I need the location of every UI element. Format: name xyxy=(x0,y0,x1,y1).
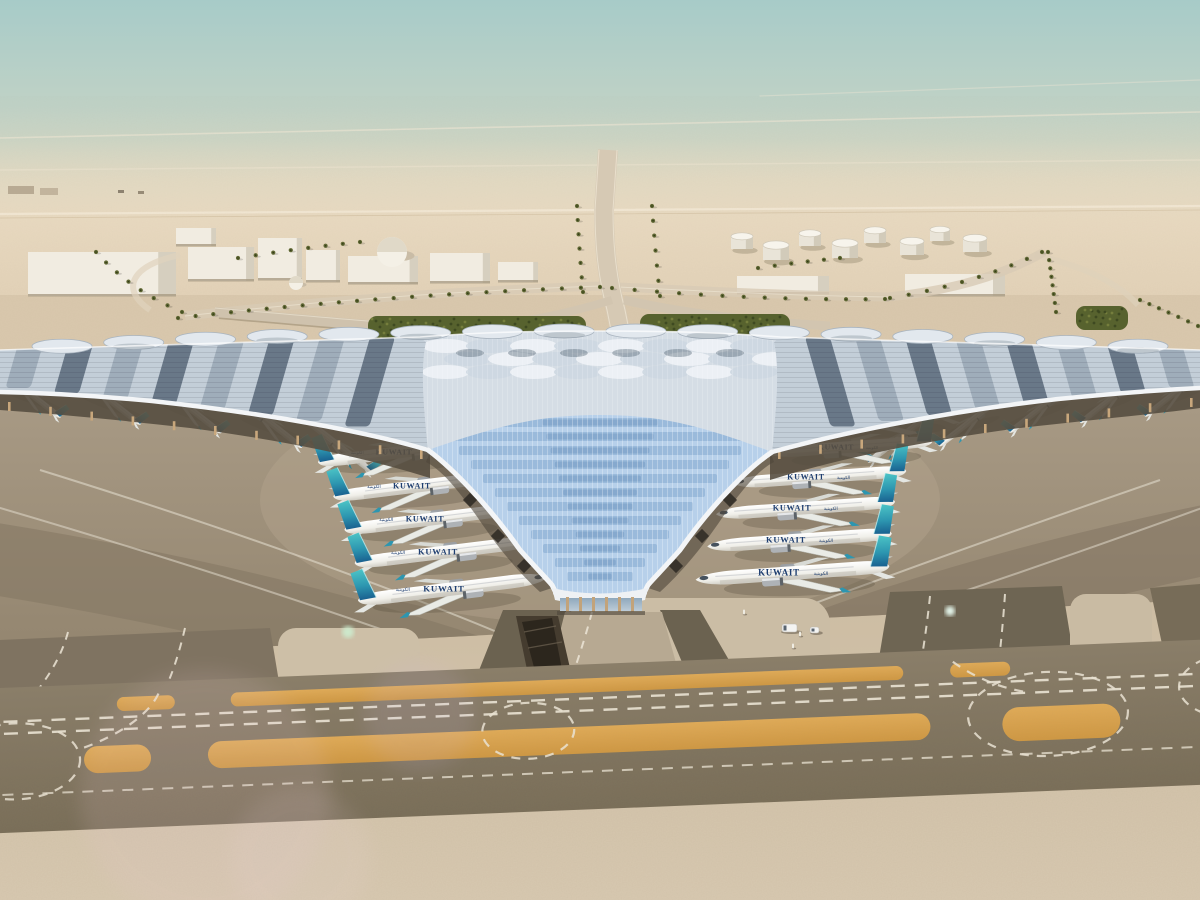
hedge-texture-dot xyxy=(726,323,729,326)
airline-title-arabic: الكويتية xyxy=(391,550,405,556)
hedge-texture-dot xyxy=(673,328,676,331)
building-side xyxy=(533,262,538,282)
hedge-texture-dot xyxy=(685,320,688,323)
palm-trunk xyxy=(656,291,658,293)
hedge-texture-dot xyxy=(692,321,695,324)
building-side xyxy=(483,253,490,283)
facade-column xyxy=(255,431,258,440)
hedge-texture-dot xyxy=(489,322,492,325)
hedge-texture-dot xyxy=(439,320,442,323)
palm-trunk xyxy=(599,286,601,288)
facade-column xyxy=(1066,414,1069,423)
hedge-texture-dot xyxy=(389,318,392,321)
palm-trunk xyxy=(1197,325,1199,327)
hedge-texture-dot xyxy=(1088,315,1091,318)
palm-trunk xyxy=(805,298,807,300)
hedge-texture-dot xyxy=(760,323,763,326)
hedge-texture-dot xyxy=(1116,319,1119,322)
airline-title-arabic: الكويتية xyxy=(837,475,850,481)
building-shadow xyxy=(430,281,490,284)
palm-trunk xyxy=(884,298,886,300)
roof-scallop xyxy=(1036,335,1096,349)
building-face xyxy=(498,262,538,282)
facade-column xyxy=(90,412,93,421)
palm-trunk xyxy=(230,311,232,313)
palm-trunk xyxy=(653,235,655,237)
hedge-texture-dot xyxy=(740,325,743,328)
palm-trunk xyxy=(1053,293,1055,295)
hedge-texture-dot xyxy=(664,317,667,320)
palm-trunk xyxy=(307,247,309,249)
cone-body xyxy=(792,644,794,649)
palm-trunk xyxy=(486,291,488,293)
vehicle-windshield xyxy=(812,629,815,632)
airline-title-arabic: الكويتية xyxy=(819,538,833,544)
facade-column xyxy=(819,445,822,454)
palm-trunk xyxy=(1052,285,1054,287)
hedge-texture-dot xyxy=(400,321,403,324)
palm-trunk xyxy=(272,252,274,254)
campus-building xyxy=(258,238,302,281)
hedge-texture-dot xyxy=(1093,322,1096,325)
lens-flare xyxy=(365,661,475,771)
airline-title-arabic: الكويتية xyxy=(814,571,829,577)
hedge-texture-dot xyxy=(698,317,701,320)
hedge-texture-dot xyxy=(560,319,563,322)
hedge-texture-dot xyxy=(691,316,694,319)
roof-scallop xyxy=(32,339,92,353)
hedge-texture-dot xyxy=(478,319,481,322)
building-shadow xyxy=(498,280,538,283)
hedge-texture-dot xyxy=(747,326,750,329)
hedge-texture-dot xyxy=(1086,321,1089,324)
palm-trunk xyxy=(561,288,563,290)
hedge-texture-dot xyxy=(1114,325,1117,328)
facade-column xyxy=(902,434,905,443)
palm-trunk xyxy=(611,287,613,289)
palm-trunk xyxy=(1139,299,1141,301)
hedge-texture-dot xyxy=(1084,309,1087,312)
hedge-block xyxy=(1076,306,1128,330)
building-face xyxy=(188,247,254,281)
palm-trunk xyxy=(504,290,506,292)
palm-trunk xyxy=(1011,265,1013,267)
building-shadow xyxy=(348,282,418,285)
airline-title: KUWAIT xyxy=(773,504,812,513)
palm-trunk xyxy=(655,250,657,252)
palm-trunk xyxy=(839,257,841,259)
tank-top xyxy=(900,237,924,245)
hedge-texture-dot xyxy=(679,324,682,327)
facade-column xyxy=(1025,419,1028,428)
palm-trunk xyxy=(865,298,867,300)
palm-trunk xyxy=(578,233,580,235)
hedge-texture-dot xyxy=(753,322,756,325)
hedge-texture-dot xyxy=(461,326,464,329)
vehicle-windshield xyxy=(784,626,787,631)
palm-trunk xyxy=(320,303,322,305)
building-shadow xyxy=(306,280,340,283)
palm-trunk xyxy=(634,289,636,291)
palm-trunk xyxy=(95,251,97,253)
hedge-texture-dot xyxy=(1111,312,1114,315)
hedge-texture-dot xyxy=(773,320,776,323)
hedge-texture-dot xyxy=(766,319,769,322)
hedge-texture-dot xyxy=(528,321,531,324)
palm-trunk xyxy=(576,205,578,207)
airline-title: KUWAIT xyxy=(393,482,431,491)
airline-title: KUWAIT xyxy=(758,568,800,578)
hedge-texture-dot xyxy=(425,322,428,325)
palm-trunk xyxy=(1054,302,1056,304)
campus-building xyxy=(28,252,176,297)
palm-trunk xyxy=(722,295,724,297)
palm-trunk xyxy=(1041,251,1043,253)
hedge-texture-dot xyxy=(678,319,681,322)
hedge-texture-dot xyxy=(745,316,748,319)
palm-trunk xyxy=(359,241,361,243)
palm-trunk xyxy=(652,220,654,222)
facade-column xyxy=(379,445,382,454)
hedge-texture-dot xyxy=(386,323,389,326)
campus-building xyxy=(430,253,490,284)
hedge-texture-dot xyxy=(759,318,762,321)
lens-flare xyxy=(945,606,955,616)
palm-trunk xyxy=(825,298,827,300)
palm-trunk xyxy=(290,249,292,251)
facade-column xyxy=(132,416,135,425)
facade-column xyxy=(1190,398,1193,407)
palm-trunk xyxy=(325,245,327,247)
palm-trunk xyxy=(105,262,107,264)
hedge-texture-dot xyxy=(672,323,675,326)
palm-trunk xyxy=(1047,251,1049,253)
hedge-texture-dot xyxy=(567,320,570,323)
palm-trunk xyxy=(542,289,544,291)
hedge-texture-dot xyxy=(542,319,545,322)
hedge-texture-dot xyxy=(1118,313,1121,316)
palm-trunk xyxy=(302,305,304,307)
building-face xyxy=(306,250,340,282)
campus-building xyxy=(188,247,254,282)
tank-top xyxy=(799,230,821,237)
hedge-texture-dot xyxy=(1079,320,1082,323)
hedge-texture-dot xyxy=(464,321,467,324)
hedge-texture-dot xyxy=(379,326,382,329)
palm-trunk xyxy=(700,294,702,296)
hedge-texture-dot xyxy=(407,322,410,325)
hedge-texture-dot xyxy=(733,324,736,327)
hedge-texture-dot xyxy=(671,318,674,321)
palm-trunk xyxy=(195,315,197,317)
palm-trunk xyxy=(580,262,582,264)
palm-trunk xyxy=(678,292,680,294)
facade-column xyxy=(8,402,11,411)
tank-top xyxy=(963,234,987,242)
palm-trunk xyxy=(579,248,581,250)
facade-column xyxy=(420,450,423,459)
hedge-texture-dot xyxy=(665,322,668,325)
palm-trunk xyxy=(581,277,583,279)
hedge-texture-dot xyxy=(719,322,722,325)
hedge-texture-dot xyxy=(1081,314,1084,317)
palm-trunk xyxy=(448,294,450,296)
tank-top xyxy=(832,239,858,247)
building-face xyxy=(176,228,216,246)
palm-trunk xyxy=(774,265,776,267)
hedge-texture-dot xyxy=(387,334,390,337)
hedge-texture-dot xyxy=(1109,318,1112,321)
airport-rendering: Aerial architectural rendering of a dese… xyxy=(0,0,1200,900)
palm-trunk xyxy=(580,287,582,289)
palm-trunk xyxy=(1158,307,1160,309)
facade-column xyxy=(214,426,217,435)
hedge-texture-dot xyxy=(450,323,453,326)
palm-trunk xyxy=(266,308,268,310)
hedge-texture-dot xyxy=(1095,316,1098,319)
palm-trunk xyxy=(764,297,766,299)
facade-column xyxy=(49,407,52,416)
building-shadow xyxy=(188,279,254,282)
building-face xyxy=(258,238,302,280)
palm-trunk xyxy=(785,298,787,300)
hedge-texture-dot xyxy=(1102,317,1105,320)
palm-trunk xyxy=(411,296,413,298)
tank-top xyxy=(763,241,789,249)
palm-trunk xyxy=(995,271,997,273)
palm-trunk xyxy=(845,298,847,300)
palm-trunk xyxy=(1177,316,1179,318)
palm-trunk xyxy=(338,301,340,303)
palm-trunk xyxy=(978,276,980,278)
palm-trunk xyxy=(430,295,432,297)
palm-trunk xyxy=(284,306,286,308)
palm-trunk xyxy=(889,297,891,299)
palm-trunk xyxy=(1187,321,1189,323)
hedge-texture-dot xyxy=(383,332,386,335)
hedge-texture-dot xyxy=(741,330,744,333)
palm-trunk xyxy=(393,297,395,299)
facade-column xyxy=(1149,403,1152,412)
building-side xyxy=(211,228,216,246)
hedge-texture-dot xyxy=(535,318,538,321)
palm-trunk xyxy=(1026,258,1028,260)
facade-column xyxy=(1108,408,1111,417)
hedge-texture-dot xyxy=(432,323,435,326)
airline-title-arabic: الكويتية xyxy=(824,506,838,512)
hedge-texture-dot xyxy=(732,319,735,322)
palm-trunk xyxy=(140,289,142,291)
palm-trunk xyxy=(177,317,179,319)
palm-trunk xyxy=(1051,276,1053,278)
facade-column xyxy=(296,436,299,445)
facade-column xyxy=(984,424,987,433)
building-side xyxy=(246,247,254,281)
palm-trunk xyxy=(658,280,660,282)
hedge-texture-dot xyxy=(375,320,378,323)
airline-title: KUWAIT xyxy=(423,584,464,594)
hedge-texture-dot xyxy=(746,321,749,324)
palm-trunk xyxy=(743,296,745,298)
facade-column xyxy=(860,440,863,449)
hedge-texture-dot xyxy=(699,322,702,325)
palm-trunk xyxy=(790,263,792,265)
palm-trunk xyxy=(908,294,910,296)
hedge-texture-dot xyxy=(1097,310,1100,313)
facade-column xyxy=(338,440,341,449)
hedge-texture-dot xyxy=(393,324,396,327)
palm-trunk xyxy=(237,257,239,259)
hedge-texture-dot xyxy=(454,329,457,332)
palm-trunk xyxy=(1055,311,1057,313)
hedge-texture-dot xyxy=(371,318,374,321)
hedge-texture-dot xyxy=(453,318,456,321)
hedge-texture-dot xyxy=(1100,323,1103,326)
palm-trunk xyxy=(167,305,169,307)
hedge-texture-dot xyxy=(1107,324,1110,327)
hedge-texture-dot xyxy=(1121,308,1124,311)
tank-top xyxy=(864,227,886,234)
cone-body xyxy=(799,632,801,637)
cone-body xyxy=(743,610,745,615)
roof-scallop-shadow xyxy=(543,332,585,338)
airline-title-arabic: الكويتية xyxy=(367,484,380,490)
palm-trunk xyxy=(467,292,469,294)
airline-title-arabic: الكويتية xyxy=(379,517,393,523)
palm-trunk xyxy=(577,219,579,221)
palm-trunk xyxy=(651,205,653,207)
palm-trunk xyxy=(255,254,257,256)
building-side xyxy=(297,238,302,280)
hedge-texture-dot xyxy=(517,318,520,321)
facade-column xyxy=(943,429,946,438)
tank-top xyxy=(930,226,950,232)
hedge-texture-dot xyxy=(1104,311,1107,314)
palm-trunk xyxy=(926,290,928,292)
airline-title-arabic: الكويتية xyxy=(396,587,410,593)
palm-trunk xyxy=(128,281,130,283)
palm-trunk xyxy=(944,286,946,288)
tank-top xyxy=(731,233,753,240)
palm-trunk xyxy=(807,261,809,263)
hedge-texture-dot xyxy=(514,323,517,326)
building-shadow xyxy=(176,244,216,247)
scene-canvas: Aerial architectural rendering of a dese… xyxy=(0,0,1200,900)
palm-trunk xyxy=(248,310,250,312)
palm-trunk xyxy=(523,289,525,291)
palm-trunk xyxy=(961,281,963,283)
hedge-texture-dot xyxy=(539,324,542,327)
facade-column xyxy=(173,421,176,430)
palm-trunk xyxy=(356,300,358,302)
palm-trunk xyxy=(375,299,377,301)
palm-trunk xyxy=(1049,268,1051,270)
hedge-texture-dot xyxy=(739,320,742,323)
palm-trunk xyxy=(1149,303,1151,305)
campus-building xyxy=(176,228,216,247)
hedge-texture-dot xyxy=(525,326,528,329)
hedge-texture-dot xyxy=(1090,309,1093,312)
building-side xyxy=(336,250,340,282)
palm-trunk xyxy=(153,297,155,299)
hedge-texture-dot xyxy=(666,327,669,330)
palm-trunk xyxy=(212,313,214,315)
hedge-texture-dot xyxy=(414,319,417,322)
airline-title: KUWAIT xyxy=(418,547,458,557)
palm-trunk xyxy=(342,243,344,245)
palm-trunk xyxy=(656,265,658,267)
palm-trunk xyxy=(181,311,183,313)
palm-trunk xyxy=(1048,259,1050,261)
palm-trunk xyxy=(823,259,825,261)
hedge-texture-dot xyxy=(503,320,506,323)
palm-trunk xyxy=(1168,312,1170,314)
hedge-texture-dot xyxy=(382,321,385,324)
hedge-texture-dot xyxy=(457,324,460,327)
airline-title: KUWAIT xyxy=(787,473,825,482)
building-face xyxy=(430,253,490,283)
building-face xyxy=(28,252,176,296)
building-side xyxy=(410,256,418,284)
hedge-texture-dot xyxy=(779,316,782,319)
campus-building xyxy=(498,262,538,283)
hedge-texture-dot xyxy=(705,318,708,321)
campus-building xyxy=(306,250,340,283)
palm-trunk xyxy=(582,291,584,293)
hedge-texture-dot xyxy=(752,317,755,320)
airline-title: KUWAIT xyxy=(406,515,445,524)
palm-trunk xyxy=(659,295,661,297)
hedge-texture-dot xyxy=(658,321,661,324)
palm-trunk xyxy=(116,272,118,274)
airline-title: KUWAIT xyxy=(766,535,806,545)
lens-flare xyxy=(342,626,354,638)
palm-trunk xyxy=(757,267,759,269)
